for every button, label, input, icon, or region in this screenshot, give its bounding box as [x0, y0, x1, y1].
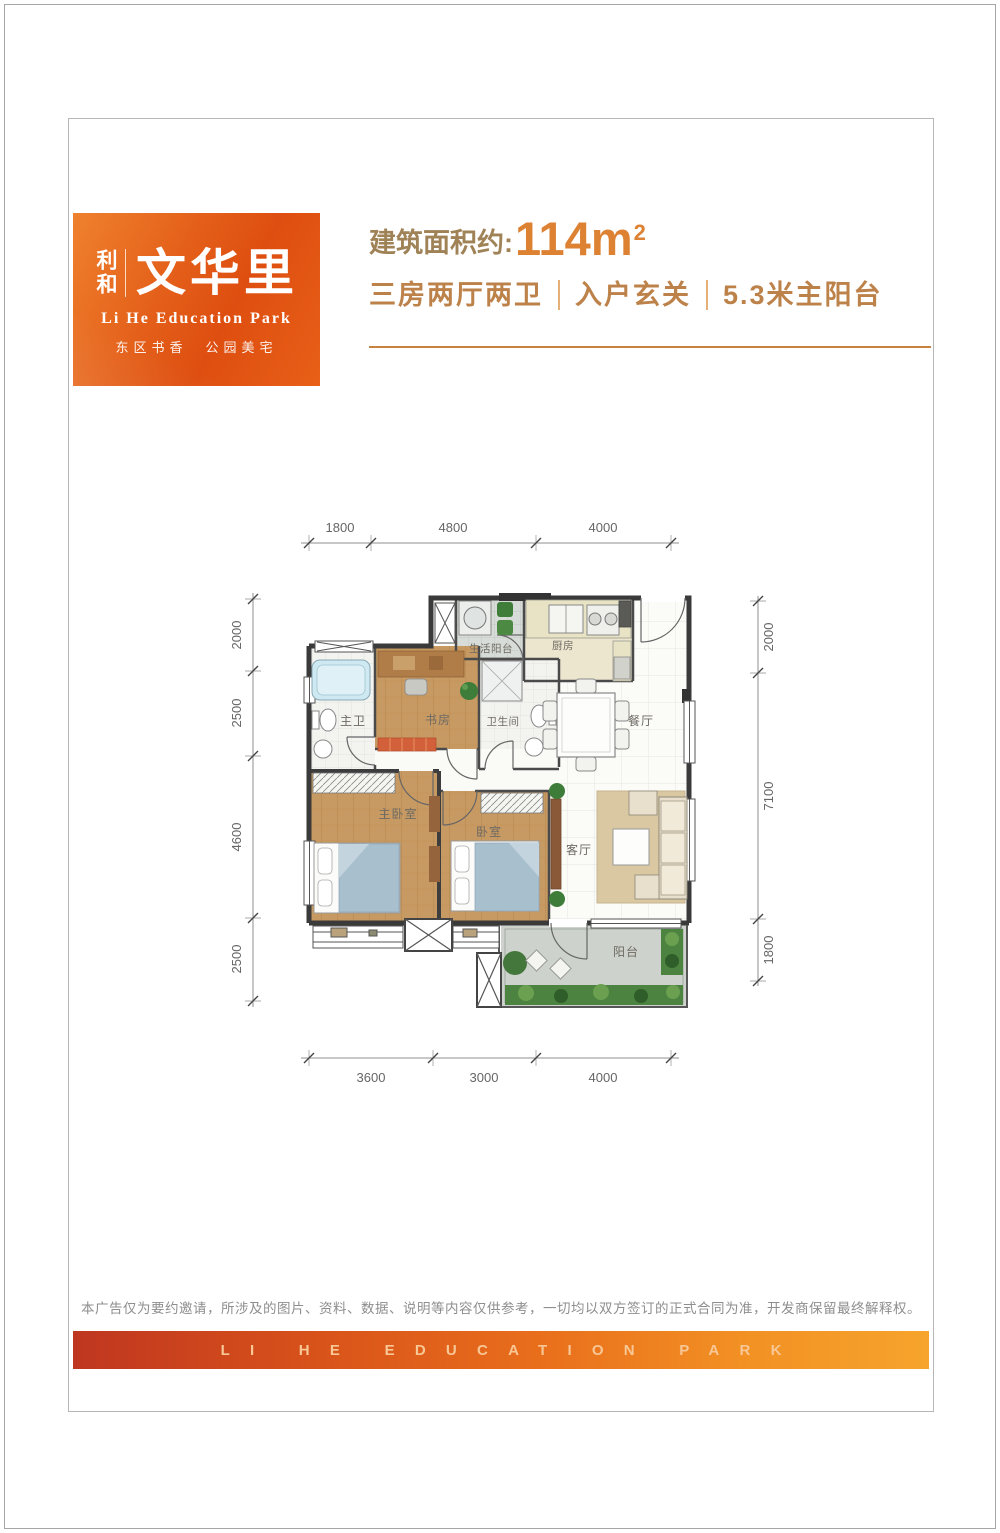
label-master-bedroom: 主卧室 — [378, 806, 417, 821]
feature-foyer: 入户玄关 — [575, 282, 691, 309]
footer-banner: LI HE EDUCATION PARK — [73, 1331, 929, 1369]
brand-name: 利和 文华里 — [95, 246, 298, 301]
label-balcony: 阳台 — [613, 944, 639, 959]
label-master-bath: 主卫 — [340, 714, 366, 728]
area-superscript: 2 — [634, 222, 646, 244]
dim-right-3: 1800 — [761, 936, 776, 965]
dim-left-4: 2500 — [229, 945, 244, 974]
dim-left-2: 2500 — [229, 699, 244, 728]
dim-bottom-2: 3000 — [470, 1070, 499, 1085]
dimensions-top — [301, 535, 679, 551]
headline-rule — [369, 346, 931, 348]
brand-logo-block: 利和 文华里 Li He Education Park 东区书香 公园美宅 — [73, 213, 320, 386]
feature-separator — [558, 280, 560, 310]
dimensions-right-labels: 2000 7100 1800 — [761, 623, 776, 965]
dim-right-1: 2000 — [761, 623, 776, 652]
brand-subtitle-en: Li He Education Park — [101, 310, 292, 328]
dim-bottom-1: 3600 — [357, 1070, 386, 1085]
label-bedroom: 卧室 — [476, 824, 502, 839]
brand-name-large: 文华里 — [136, 246, 298, 301]
feature-line: 三房两厅两卫 入户玄关 5.3米主阳台 — [369, 280, 935, 310]
feature-separator — [706, 280, 708, 310]
footer-banner-text: LI HE EDUCATION PARK — [221, 1342, 802, 1359]
label-laundry-balcony: 生活阳台 — [469, 642, 513, 655]
dim-bottom-3: 4000 — [589, 1070, 618, 1085]
dimensions-top-labels: 1800 4800 4000 — [326, 520, 618, 535]
label-dining: 餐厅 — [628, 713, 654, 728]
dimensions-bottom — [301, 1050, 679, 1066]
flyer-card: 利和 文华里 Li He Education Park 东区书香 公园美宅 建筑… — [68, 118, 934, 1412]
dim-left-3: 4600 — [229, 823, 244, 852]
headline: 建筑面积约: 114m 2 三房两厅两卫 入户玄关 5.3米主阳台 — [369, 215, 935, 310]
area-line: 建筑面积约: 114m 2 — [369, 215, 935, 262]
floorplan-svg: 生活阳台 厨房 主卫 书房 卫生间 餐厅 主卧室 卧室 客厅 阳台 1800 4… — [216, 496, 791, 1116]
disclaimer-text: 本广告仅为要约邀请，所涉及的图片、资料、数据、说明等内容仅供参考，一切均以双方签… — [69, 1297, 933, 1317]
brand-name-small: 利和 — [95, 249, 126, 297]
dim-left-1: 2000 — [229, 621, 244, 650]
area-value: 114m — [515, 215, 633, 262]
bedroom-furniture — [451, 841, 539, 911]
label-study: 书房 — [425, 712, 451, 727]
label-living: 客厅 — [566, 842, 592, 857]
dim-right-2: 7100 — [761, 782, 776, 811]
dim-top-1: 1800 — [326, 520, 355, 535]
area-label: 建筑面积约: — [369, 230, 513, 262]
feature-balcony: 5.3米主阳台 — [723, 282, 883, 309]
dim-top-2: 4800 — [439, 520, 468, 535]
floorplan: 生活阳台 厨房 主卫 书房 卫生间 餐厅 主卧室 卧室 客厅 阳台 1800 4… — [216, 496, 791, 1116]
dimensions-left — [245, 593, 261, 1007]
brand-slogan: 东区书香 公园美宅 — [115, 337, 277, 356]
label-kitchen: 厨房 — [552, 639, 574, 652]
dimensions-bottom-labels: 3600 3000 4000 — [357, 1070, 618, 1085]
feature-layout: 三房两厅两卫 — [369, 282, 543, 309]
dim-top-3: 4000 — [589, 520, 618, 535]
dimensions-left-labels: 2000 2500 4600 2500 — [229, 621, 244, 974]
label-bathroom: 卫生间 — [487, 715, 520, 728]
